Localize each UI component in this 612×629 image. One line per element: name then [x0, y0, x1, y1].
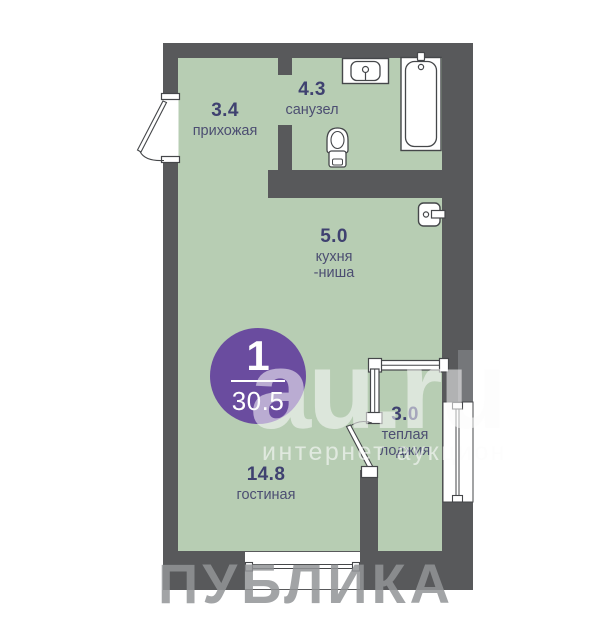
hallway-area: 3.4 [175, 99, 275, 123]
watermark-tagline: интернет аукцион [262, 438, 507, 467]
outlet-icon [419, 203, 446, 226]
bathtub-icon [401, 53, 441, 151]
entry-door-icon [138, 94, 180, 163]
kitchen-name-line2: -ниша [289, 265, 379, 282]
room-label-bathroom: 4.3 санузел [267, 78, 357, 118]
watermark-developer: ПУБЛИКА [158, 556, 454, 612]
kitchen-area: 5.0 [289, 225, 379, 249]
toilet-icon [327, 128, 348, 167]
living-name: гостиная [221, 487, 311, 504]
bathroom-area: 4.3 [267, 78, 357, 102]
watermark-site: au.ru [250, 336, 504, 446]
floor-plan: 3.4 прихожая 4.3 санузел 5.0 кухня -ниша… [0, 0, 612, 629]
hallway-name: прихожая [175, 123, 275, 140]
kitchen-name-line1: кухня [289, 249, 379, 266]
room-label-hallway: 3.4 прихожая [175, 99, 275, 139]
room-label-living: 14.8 гостиная [221, 463, 311, 503]
room-label-kitchen: 5.0 кухня -ниша [289, 225, 379, 282]
bathroom-name: санузел [267, 102, 357, 119]
